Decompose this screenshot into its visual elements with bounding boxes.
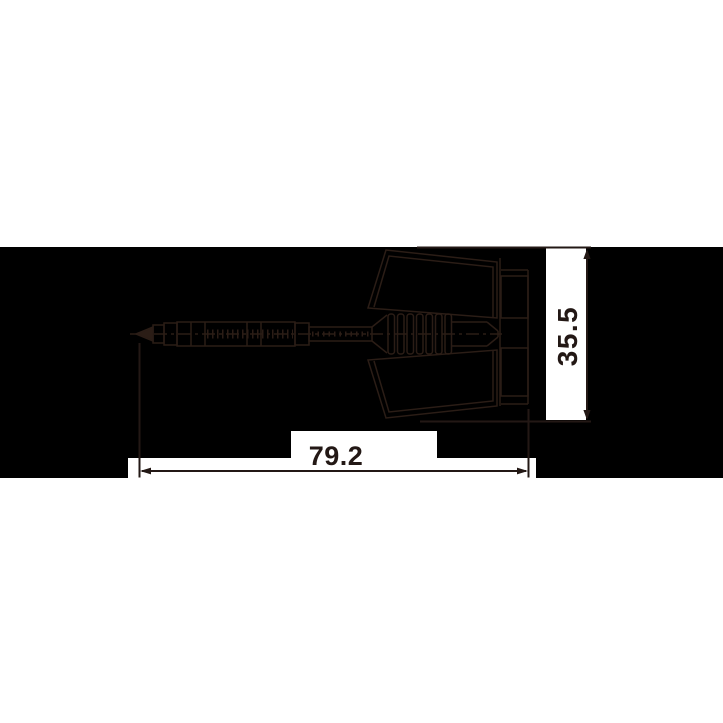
technical-drawing: 79.2 35.5 [0, 0, 723, 723]
dimension-label-horizontal: 79.2 [309, 441, 364, 471]
dimension-label-vertical: 35.5 [552, 306, 583, 367]
page: 79.2 35.5 [0, 0, 723, 723]
